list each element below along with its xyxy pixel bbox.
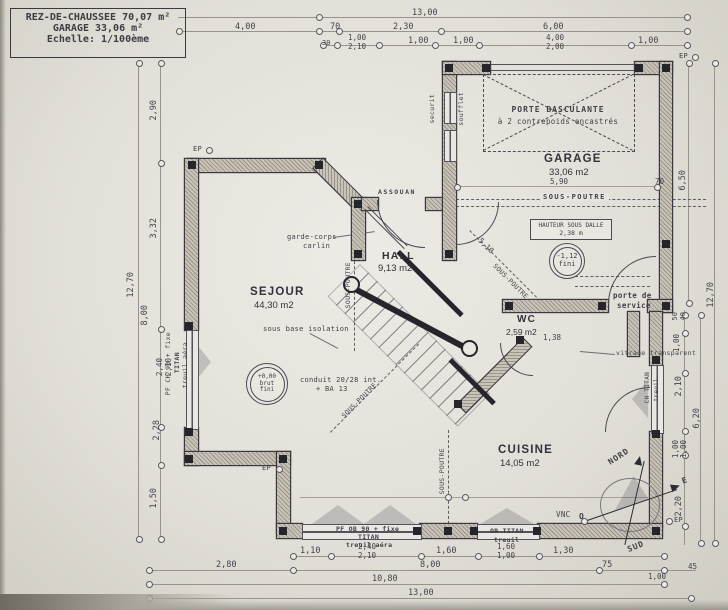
post — [185, 428, 193, 436]
window-garage-left-1 — [444, 92, 457, 124]
wall-sejour-left-upper — [185, 159, 198, 330]
porte-service-l2: service — [617, 301, 651, 310]
dim-label: 2,10 — [348, 42, 366, 51]
dim-label: 70 — [330, 22, 340, 32]
wall-sejour-bottom — [185, 452, 290, 465]
tick — [682, 428, 689, 435]
beam-line — [354, 256, 355, 351]
compass: NORD E O SUD — [585, 450, 695, 555]
post — [533, 527, 541, 535]
tick — [418, 553, 425, 560]
level-low-value: -1,12 — [556, 253, 577, 261]
tick — [682, 330, 689, 337]
dim-label: 8,00 — [420, 560, 440, 570]
room-area-hall: 9,13 m2 — [378, 263, 412, 274]
post — [516, 336, 524, 344]
floor-plan: REZ-DE-CHAUSSEE 70,07 m² GARAGE 33,06 m²… — [0, 0, 728, 610]
tick — [316, 14, 323, 21]
dim-label: 1,50 — [149, 488, 159, 508]
wall-entry-right — [426, 198, 444, 210]
garde-corps-l2: carlin — [303, 242, 330, 250]
legend-scale: Echelle: 1/100ème — [11, 34, 185, 45]
tick — [136, 536, 143, 543]
vnc-label: VNC — [556, 510, 570, 519]
sous-poutre-label: SOUS-POUTRE — [540, 193, 609, 201]
conduit-l2: + BA 13 — [316, 385, 348, 393]
wall-sejour-top — [188, 159, 325, 172]
dim-label: 1,60 — [436, 546, 456, 556]
ep-tick — [276, 466, 283, 473]
porte-service-l1: porte de — [613, 291, 652, 300]
dim-label: 2,10 — [358, 551, 376, 560]
tick — [316, 28, 323, 35]
dim-label: 2,90 — [149, 100, 159, 120]
isolation-note: sous base isolation — [263, 325, 349, 333]
porte-basculante-label: PORTE BASCULANTE — [483, 105, 633, 114]
compass-west-label: O — [579, 512, 584, 521]
post — [505, 302, 513, 310]
tick — [146, 567, 153, 574]
front-door-arc — [377, 200, 425, 248]
glazing-triangle — [198, 346, 211, 378]
window-left-l1: PF CH 90 + fixe — [164, 332, 172, 395]
glazing-triangle — [364, 505, 416, 524]
dim-label: 70 — [655, 177, 664, 186]
post — [188, 161, 196, 169]
tick — [698, 540, 705, 547]
dim-line — [148, 584, 664, 585]
tick — [454, 184, 461, 191]
level-low-suffix: fini — [559, 261, 576, 269]
level-zero-l1: +0,00 — [258, 374, 276, 381]
post — [635, 64, 643, 72]
wall-wc-top — [503, 300, 608, 312]
tick — [136, 60, 143, 67]
tick — [476, 42, 483, 49]
dim-label: 2,28 — [152, 420, 162, 440]
room-area-sejour: 44,30 m2 — [254, 300, 294, 311]
dim-label: 1,00 — [408, 36, 428, 46]
tick — [686, 60, 693, 67]
ep-tick — [692, 54, 699, 61]
window-bottom2-l2: treuil — [494, 536, 519, 544]
wall-garage-right — [660, 62, 672, 312]
tick — [445, 494, 452, 501]
legend-box: REZ-DE-CHAUSSEE 70,07 m² GARAGE 33,06 m²… — [10, 8, 186, 58]
dim-line — [688, 62, 689, 302]
window-bottom-l2: TITAN — [358, 533, 379, 541]
leader-line — [580, 351, 615, 355]
garage-door-lintel — [490, 64, 635, 65]
tick — [684, 28, 691, 35]
post — [652, 430, 660, 438]
compass-north-label: NORD — [606, 446, 630, 466]
level-circle-garage: -1,12 fini — [549, 243, 585, 279]
tick — [328, 553, 335, 560]
room-area-wc: 2,59 m2 — [506, 327, 537, 337]
paper-edge-bottom-left — [0, 594, 235, 610]
tick — [661, 581, 668, 588]
window-bottom-l1: PF OB 90 + fixe — [336, 525, 399, 533]
garage-hall-door-arc — [456, 202, 499, 245]
dim-label: 2,80 — [216, 560, 236, 570]
sous-poutre-label: SOUS-POUTRE — [438, 448, 446, 494]
post — [662, 240, 670, 248]
window-right-l1: CH TITAN — [644, 372, 651, 403]
tick — [376, 42, 383, 49]
wall-step-vertical — [277, 452, 290, 532]
tick — [698, 312, 705, 319]
post — [445, 250, 453, 258]
post — [354, 250, 362, 258]
post — [279, 455, 287, 463]
conduit-l1: conduit 20/28 int. — [300, 376, 381, 384]
leader-line — [310, 333, 339, 349]
post — [185, 322, 193, 330]
post — [662, 64, 670, 72]
post — [279, 527, 287, 535]
room-area-cuisine: 14,05 m2 — [500, 458, 540, 469]
post — [470, 527, 478, 535]
ep-label: EP — [679, 52, 688, 60]
tick — [158, 60, 165, 67]
post — [454, 400, 462, 408]
tick — [146, 581, 153, 588]
beam-line — [448, 430, 449, 524]
post — [354, 200, 362, 208]
tick — [290, 553, 297, 560]
garage-door-lintel — [490, 70, 635, 71]
post — [598, 302, 606, 310]
vitrage-label: vitrage transparent — [616, 349, 696, 357]
room-name-cuisine: CUISINE — [498, 444, 553, 456]
level-zero-l2: brut — [260, 381, 274, 388]
dim-label: 2,10 — [674, 376, 684, 396]
sous-poutre-label: SOUS-POUTRE — [491, 262, 529, 300]
dim-label: 1,00 — [497, 551, 515, 560]
tick — [290, 567, 297, 574]
dim-label: 1,00 — [638, 36, 658, 46]
porte-basculante-label2: à 2 contrepoids encastrés — [483, 117, 633, 126]
dim-label: 8,00 — [140, 305, 150, 325]
window-bottom-l3: treuil aéra — [346, 541, 392, 549]
securit-label: securit — [428, 94, 436, 124]
dim-label: 13,00 — [408, 588, 434, 598]
dim-label: 6,20 — [692, 408, 702, 428]
garde-corps-l1: garde-corps — [287, 233, 337, 241]
post — [185, 455, 193, 463]
room-name-garage: GARAGE — [544, 153, 602, 165]
hauteur-sous-dalle-l1: HAUTEUR SOUS DALLE — [531, 222, 611, 229]
window-right-l2: treuil — [653, 378, 660, 401]
tick — [686, 300, 693, 307]
dim-label: 4,00 — [546, 33, 564, 42]
post — [315, 161, 323, 169]
glazing-triangle — [312, 505, 364, 524]
post — [413, 527, 421, 535]
dim-label: 2,00 — [546, 42, 564, 51]
dim-label: 5,90 — [550, 177, 568, 186]
tick — [438, 28, 445, 35]
hauteur-sous-dalle-l2: 2,38 m — [531, 229, 611, 237]
dim-label: 45 — [688, 562, 697, 571]
window-left-l2: TITAN — [173, 352, 181, 373]
railing-post — [461, 340, 478, 357]
ep-tick — [206, 147, 213, 154]
dim-label: 1,00 — [348, 33, 366, 42]
tick — [158, 536, 165, 543]
dim-label: 1,10 — [300, 546, 320, 556]
dim-label: 1,00 — [453, 36, 473, 46]
tick — [684, 42, 691, 49]
dim-label: 2,30 — [393, 22, 413, 32]
room-area-garage: 33,06 m2 — [549, 167, 589, 178]
dim-label: 12,70 — [706, 282, 716, 308]
compass-arrow-e — [670, 482, 681, 492]
hauteur-sous-dalle-box: HAUTEUR SOUS DALLE 2,38 m — [530, 219, 612, 240]
tick — [712, 60, 719, 67]
tick — [334, 42, 341, 49]
window-bottom2-l1: OB TITAN — [490, 527, 524, 535]
tick — [712, 540, 719, 547]
dim-label: 3,32 — [149, 218, 159, 238]
dim-line — [138, 60, 139, 540]
assouan-label: ASSOUAN — [378, 188, 416, 196]
level-circle-sejour: +0,00 brut fini — [246, 363, 288, 405]
dim-label: 1,38 — [543, 333, 561, 342]
room-name-sejour: SEJOUR — [250, 286, 305, 298]
tick — [158, 160, 165, 167]
tick — [684, 14, 691, 21]
room-name-hall: HALL — [382, 250, 415, 262]
dim-label: 1,00 — [648, 572, 666, 581]
tick — [158, 462, 165, 469]
window-left-l3: treuil aéra — [181, 342, 189, 388]
glazing-triangle — [480, 508, 534, 524]
compass-south-label: SUD — [626, 539, 646, 554]
tick — [475, 553, 482, 560]
dim-label: 13,00 — [412, 8, 438, 18]
level-zero-l4: fini — [260, 387, 274, 394]
post — [482, 64, 490, 72]
legend-title: REZ-DE-CHAUSSEE 70,07 m² — [11, 12, 185, 23]
tick — [628, 42, 635, 49]
post — [445, 64, 453, 72]
dim-label: 75 — [602, 560, 612, 570]
dim-label: 2,40 — [155, 358, 164, 376]
dim-label: 50 — [671, 312, 679, 320]
dim-label: 6,50 — [678, 170, 688, 190]
tick — [462, 494, 469, 501]
ep-label: EP — [262, 464, 271, 472]
dim-line — [456, 186, 656, 187]
dim-label: 10,80 — [372, 574, 398, 584]
room-name-wc: WC — [517, 314, 536, 325]
dim-label: 6,00 — [543, 22, 563, 32]
compass-east-label: E — [681, 475, 689, 485]
sous-poutre-label: SOUS-POUTRE — [344, 262, 352, 308]
paper-edge-left — [0, 0, 6, 610]
dim-label: 12,70 — [126, 272, 136, 298]
tick — [432, 42, 439, 49]
window-garage-left-2 — [444, 130, 457, 162]
post — [652, 356, 660, 364]
dim-label: 4,00 — [235, 22, 255, 32]
soufflet-label: soufflet — [457, 92, 465, 126]
dim-line — [148, 570, 696, 571]
dim-label: 1,30 — [553, 546, 573, 556]
tick — [536, 553, 543, 560]
post — [444, 527, 452, 535]
legend-garage: GARAGE 33,06 m² — [11, 23, 185, 34]
dim-label: 40 — [679, 312, 687, 320]
ep-label: EP — [193, 145, 202, 153]
post — [662, 302, 670, 310]
dim-label: 30 — [322, 39, 330, 47]
